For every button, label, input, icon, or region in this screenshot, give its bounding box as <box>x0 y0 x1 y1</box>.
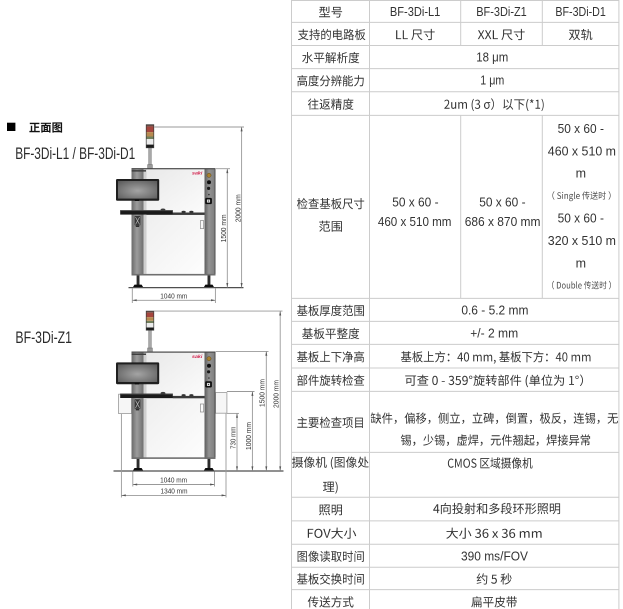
svg-text:1040 mm: 1040 mm <box>160 291 187 300</box>
svg-text:50 x 60 -: 50 x 60 - <box>479 196 525 210</box>
svg-text:saki: saki <box>192 354 203 359</box>
svg-text:18 μm: 18 μm <box>476 51 508 65</box>
svg-text:460 x 510 m: 460 x 510 m <box>548 144 616 158</box>
svg-text:1000 mm: 1000 mm <box>244 422 253 450</box>
svg-text:320 x 510 m: 320 x 510 m <box>548 234 616 248</box>
svg-text:460 x 510 mm: 460 x 510 mm <box>378 215 452 229</box>
svg-text:686 x 870 mm: 686 x 870 mm <box>465 215 541 229</box>
svg-text:saki: saki <box>192 170 203 175</box>
svg-text:1500 mm: 1500 mm <box>219 214 228 242</box>
svg-text:1340 mm: 1340 mm <box>161 486 188 495</box>
svg-text:1500 mm: 1500 mm <box>258 379 267 407</box>
svg-text:BF-3Di-Z1: BF-3Di-Z1 <box>476 5 527 19</box>
svg-text:BF-3Di-D1: BF-3Di-D1 <box>555 5 606 19</box>
svg-text:BF-3Di-L1 / BF-3Di-D1: BF-3Di-L1 / BF-3Di-D1 <box>15 145 135 163</box>
svg-text:m: m <box>576 256 586 270</box>
svg-text:50 x 60 -: 50 x 60 - <box>558 122 604 136</box>
svg-text:730 mm: 730 mm <box>228 427 237 449</box>
svg-text:0.6 - 5.2 mm: 0.6 - 5.2 mm <box>461 304 528 318</box>
svg-text:50 x 60 -: 50 x 60 - <box>558 212 604 226</box>
svg-text:390 ms/FOV: 390 ms/FOV <box>461 549 529 563</box>
svg-text:BF-3Di-Z1: BF-3Di-Z1 <box>15 329 72 347</box>
svg-text:50 x 60 -: 50 x 60 - <box>392 196 438 210</box>
svg-text:+/- 2 mm: +/- 2 mm <box>470 327 518 341</box>
svg-text:1040 mm: 1040 mm <box>160 475 187 484</box>
svg-text:1 μm: 1 μm <box>480 74 504 88</box>
svg-text:m: m <box>576 167 586 181</box>
svg-text:BF-3Di-L1: BF-3Di-L1 <box>390 5 441 19</box>
svg-text:2000 mm: 2000 mm <box>234 194 243 222</box>
svg-text:2000 mm: 2000 mm <box>272 380 281 408</box>
